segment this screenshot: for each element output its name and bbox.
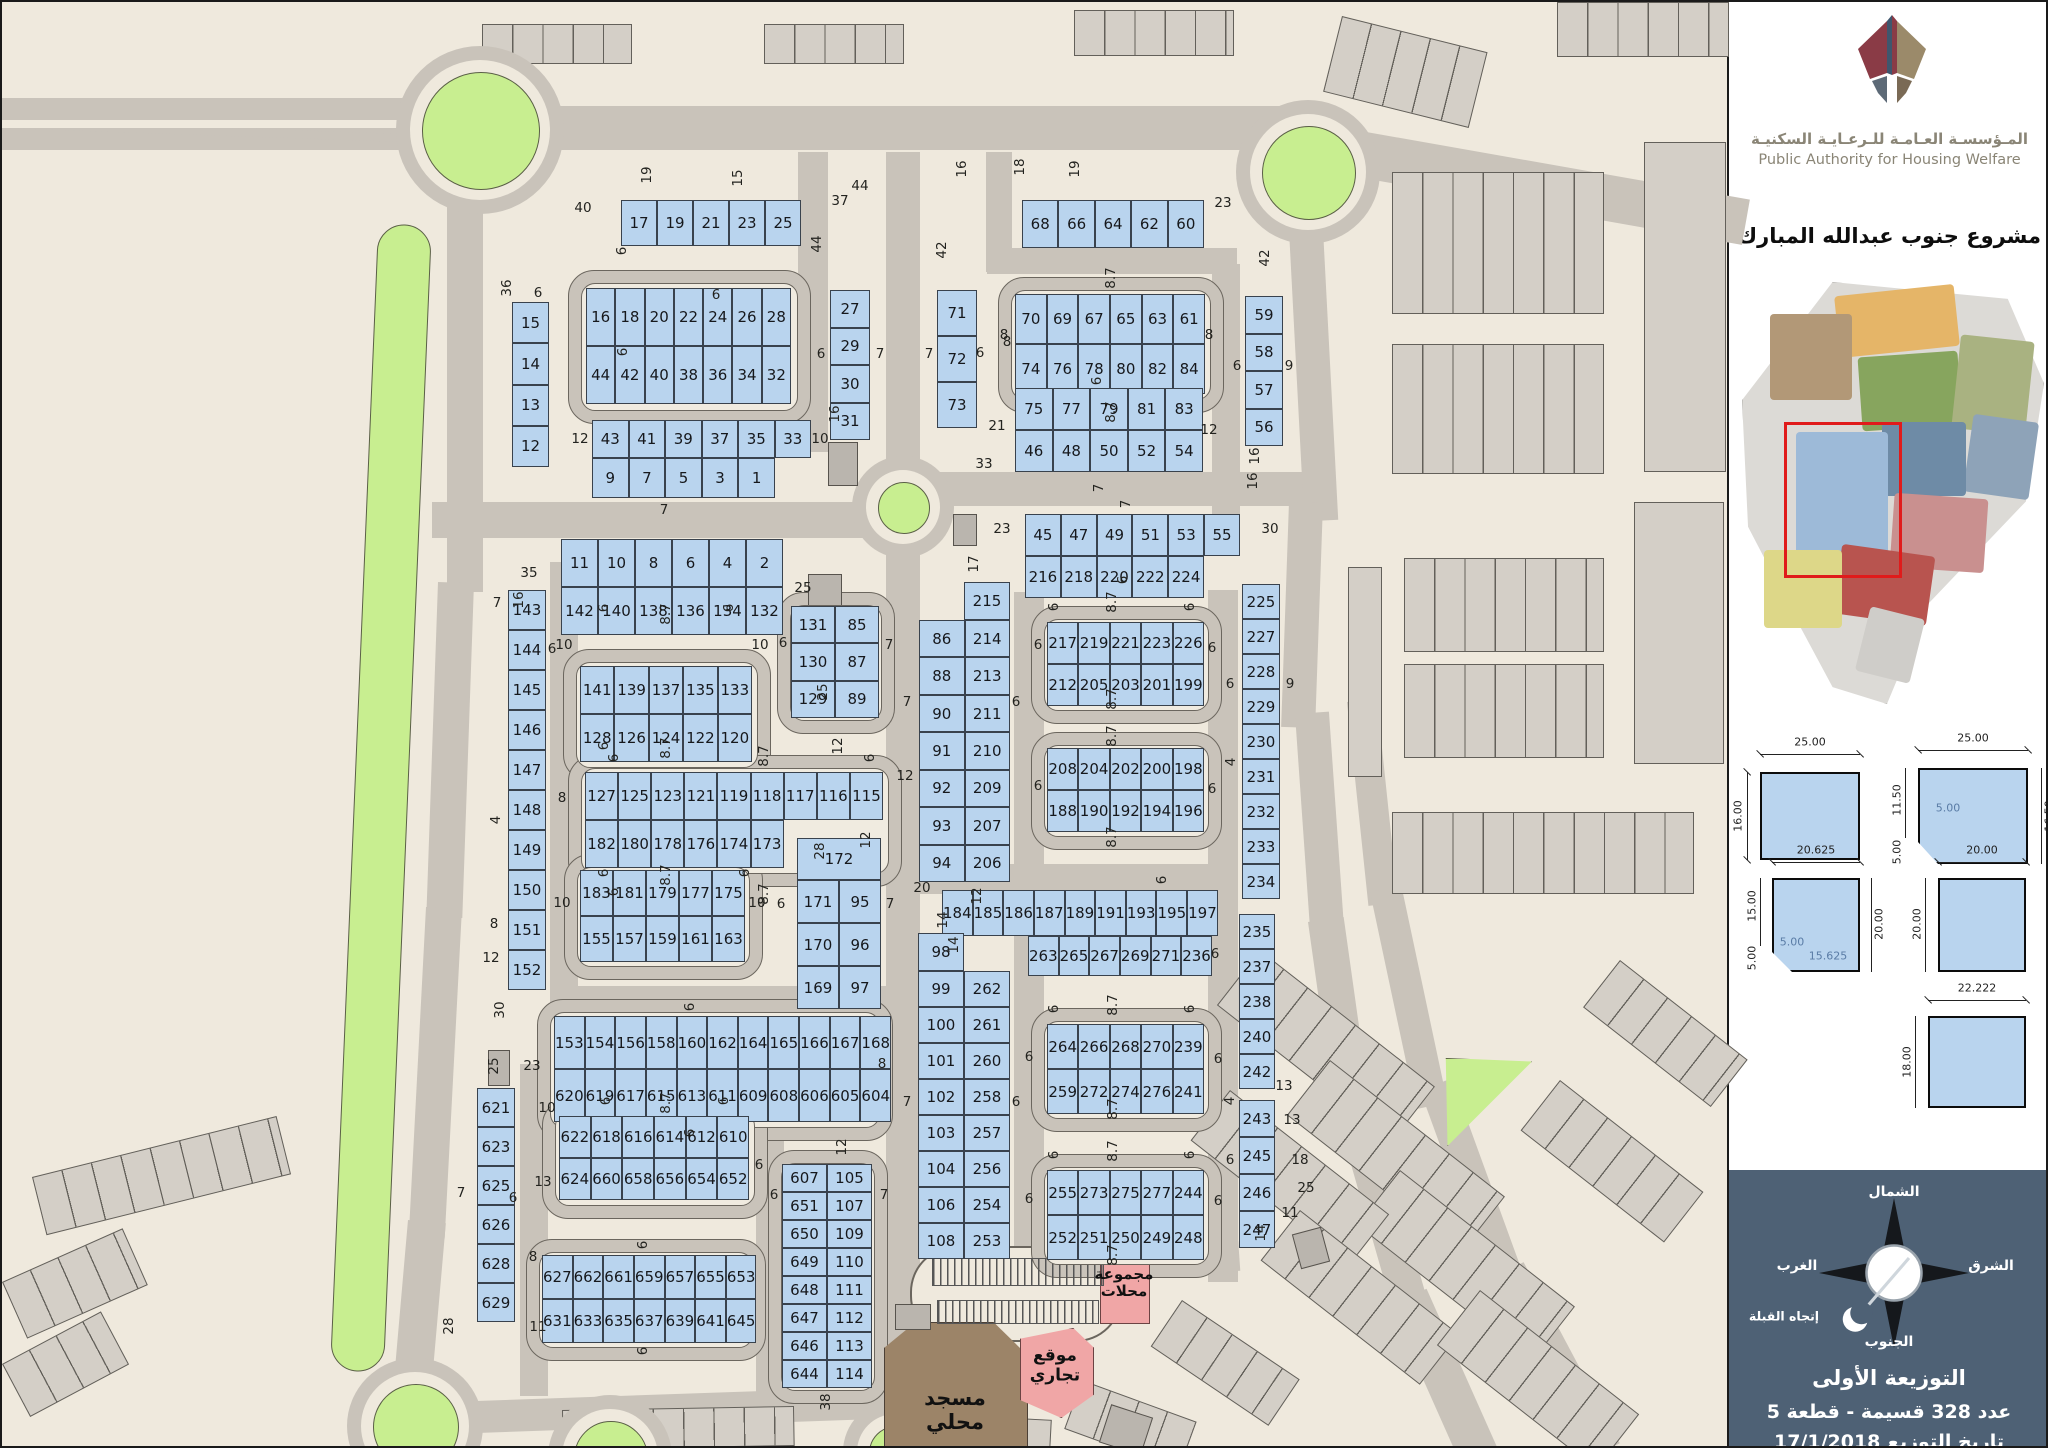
plot-67: 67	[1078, 294, 1110, 344]
plot-648: 648	[782, 1276, 827, 1304]
plot-3: 3	[702, 458, 739, 498]
plot-604: 604	[860, 1069, 891, 1122]
road-dim-label: 7	[886, 896, 895, 912]
road-dim-label: 6	[721, 604, 737, 613]
road-dim-label: 30	[492, 1001, 508, 1018]
plot-253: 253	[964, 1223, 1010, 1259]
plot-266: 266	[1078, 1024, 1109, 1069]
plot-139: 139	[614, 666, 648, 714]
road-segment	[1281, 502, 1323, 728]
plot-25: 25	[765, 200, 801, 246]
road-dim-label: 4	[1222, 1097, 1238, 1106]
plot-198: 198	[1173, 748, 1204, 790]
plot-256: 256	[964, 1151, 1010, 1187]
plot-116: 116	[817, 772, 850, 820]
plot-84: 84	[1173, 344, 1205, 394]
plot-652: 652	[717, 1158, 749, 1200]
plot-91: 91	[919, 732, 965, 769]
plot-229: 229	[1242, 689, 1280, 724]
road-dim-label: 11	[1281, 1205, 1298, 1221]
plot-105: 105	[827, 1164, 872, 1192]
plot-85: 85	[835, 606, 879, 643]
plot-type-4	[1938, 878, 2026, 972]
plot-620: 620	[554, 1069, 585, 1122]
road-dim-label: 7	[925, 346, 934, 362]
plot-219: 219	[1078, 622, 1109, 664]
road-dim-label: 12	[830, 737, 846, 754]
plot-121: 121	[684, 772, 717, 820]
road-dim-label: 7	[457, 1185, 466, 1201]
road-dim-label: 18	[1291, 1152, 1308, 1168]
plot-41: 41	[629, 420, 666, 458]
plot-215: 215	[964, 582, 1010, 620]
road-dim-label: 8.7	[1104, 591, 1120, 612]
road-dim-label: 16	[954, 160, 970, 177]
road-median	[2, 120, 440, 128]
project-title: مشروع جنوب عبدالله المبارك	[1729, 224, 2048, 248]
road-dim-label: 10	[538, 1100, 555, 1116]
plot-262: 262	[964, 971, 1010, 1007]
plot-607: 607	[782, 1164, 827, 1192]
plot-100: 100	[918, 1007, 964, 1043]
unassigned-plot-row	[1392, 812, 1694, 894]
road-dim-label: 6	[534, 285, 543, 301]
plot-block: 454749515355	[1025, 514, 1240, 556]
road-dim-label: 25	[815, 683, 831, 700]
plot-653: 653	[726, 1255, 757, 1299]
plot-58: 58	[1245, 334, 1283, 372]
plot-655: 655	[695, 1255, 726, 1299]
plot-637: 637	[634, 1299, 665, 1343]
road-dim-label: 25	[486, 1057, 502, 1074]
plot-59: 59	[1245, 296, 1283, 334]
plot-645: 645	[726, 1299, 757, 1343]
plot-block: 235237238240242	[1239, 914, 1275, 1089]
road-dim-label: 15	[730, 169, 746, 186]
overview-highlight-box	[1784, 422, 1902, 578]
plot-114: 114	[827, 1360, 872, 1388]
commercial-label: موقعتجاري	[1030, 1346, 1080, 1385]
road-dim-label: 18	[1012, 158, 1028, 175]
unassigned-plot-row	[1404, 664, 1604, 758]
road-dim-label: 6	[1046, 1151, 1062, 1160]
road-dim-label: 6	[1182, 1151, 1198, 1160]
plot-264: 264	[1047, 1024, 1078, 1069]
road-dim-label: 8	[1205, 327, 1214, 343]
plot-21: 21	[693, 200, 729, 246]
road-dim-label: 6	[755, 1157, 764, 1173]
road-dim-label: 12	[482, 950, 499, 966]
plot-224: 224	[1168, 556, 1204, 598]
plot-152: 152	[508, 950, 546, 990]
dim-label: 25.00	[1794, 736, 1826, 749]
plot-123: 123	[651, 772, 684, 820]
plot-151: 151	[508, 910, 546, 950]
plot-649: 649	[782, 1248, 827, 1276]
plot-102: 102	[918, 1079, 964, 1115]
unassigned-plot-row	[1583, 960, 1748, 1107]
plot-243: 243	[1239, 1100, 1275, 1137]
plot-187: 187	[1034, 890, 1065, 936]
plot-621: 621	[477, 1088, 515, 1127]
plot-15: 15	[512, 302, 549, 343]
road-dim-label: 8.7	[658, 603, 674, 624]
plot-222: 222	[1132, 556, 1168, 598]
plot-158: 158	[646, 1016, 677, 1069]
plot-63: 63	[1142, 294, 1174, 344]
plot-28: 28	[762, 288, 791, 346]
unassigned-plot-row	[1644, 142, 1726, 472]
plot-153: 153	[554, 1016, 585, 1069]
plot-32: 32	[762, 346, 791, 404]
road-dim-label: 10	[555, 637, 572, 653]
plot-629: 629	[477, 1283, 515, 1322]
plot-136: 136	[672, 587, 709, 635]
plot-277: 277	[1141, 1170, 1172, 1215]
road-dim-label: 13	[1283, 1112, 1300, 1128]
road-dim-label: 23	[993, 521, 1010, 537]
plot-159: 159	[646, 916, 679, 962]
plot-231: 231	[1242, 759, 1280, 794]
road-dim-label: 8.7	[1103, 401, 1119, 422]
plot-217: 217	[1047, 622, 1078, 664]
plot-51: 51	[1132, 514, 1168, 556]
plot-block: 263265267269271236	[1028, 936, 1208, 976]
plot-193: 193	[1126, 890, 1157, 936]
plot-96: 96	[839, 923, 881, 966]
plot-639: 639	[665, 1299, 696, 1343]
road-dim-label: 8.7	[1104, 688, 1120, 709]
road-dim-label: 8	[490, 916, 499, 932]
road-dim-label: 8.7	[658, 1092, 674, 1113]
road-dim-label: 6	[1226, 676, 1235, 692]
plot-609: 609	[738, 1069, 769, 1122]
road-dim-label: 6	[1211, 946, 1220, 962]
plot-93: 93	[919, 807, 965, 844]
plot-258: 258	[964, 1079, 1010, 1115]
plot-617: 617	[615, 1069, 646, 1122]
plot-155: 155	[580, 916, 613, 962]
plot-block: 215	[964, 582, 1010, 620]
road-dim-label: 6	[1233, 358, 1242, 374]
plot-240: 240	[1239, 1019, 1275, 1054]
plot-195: 195	[1156, 890, 1187, 936]
road-dim-label: 6	[1034, 778, 1043, 794]
road-dim-label: 16	[1245, 472, 1261, 489]
plot-113: 113	[827, 1332, 872, 1360]
plot-199: 199	[1173, 664, 1204, 706]
plot-631: 631	[542, 1299, 573, 1343]
plot-8: 8	[635, 539, 672, 587]
plot-62: 62	[1131, 200, 1167, 248]
plot-64: 64	[1095, 200, 1131, 248]
plot-block: 97531	[592, 458, 775, 498]
plot-20: 20	[645, 288, 674, 346]
plot-83: 83	[1165, 388, 1203, 430]
plot-168: 168	[860, 1016, 891, 1069]
road-dim-label: 6	[1226, 1152, 1235, 1168]
plot-646: 646	[782, 1332, 827, 1360]
road-dim-label: 7	[1118, 500, 1134, 509]
plot-271: 271	[1151, 936, 1182, 976]
road-dim-label: 44	[851, 178, 868, 194]
plot-624: 624	[559, 1158, 591, 1200]
road-dim-label: 8	[558, 790, 567, 806]
road-dim-label: 6	[1115, 576, 1131, 585]
utility-box	[895, 1304, 931, 1330]
plot-block: 217219221223226212205203201199	[1047, 622, 1204, 706]
road-dim-label: 12	[896, 768, 913, 784]
plot-block: 143144145146147148149150151152	[508, 590, 546, 990]
unassigned-plot-row	[2, 1311, 129, 1417]
plot-618: 618	[591, 1116, 623, 1158]
road-dim-label: 12	[969, 887, 985, 904]
plot-267: 267	[1089, 936, 1120, 976]
plot-7: 7	[629, 458, 666, 498]
plot-654: 654	[686, 1158, 718, 1200]
plot-block: 59585756	[1245, 296, 1283, 446]
unassigned-plot-row	[1557, 2, 1729, 57]
plot-226: 226	[1173, 622, 1204, 664]
plot-127: 127	[585, 772, 618, 820]
road-dim-label: 14	[935, 911, 951, 928]
road-dim-label: 16	[827, 405, 843, 422]
plot-245: 245	[1239, 1137, 1275, 1174]
plot-1: 1	[738, 458, 775, 498]
plot-90: 90	[919, 695, 965, 732]
plot-626: 626	[477, 1205, 515, 1244]
plot-132: 132	[746, 587, 783, 635]
road-dim-label: 42	[1257, 249, 1273, 266]
plot-block: 131851308712989	[791, 606, 879, 718]
plot-11: 11	[561, 539, 598, 587]
plot-103: 103	[918, 1115, 964, 1151]
road-dim-label: 9	[1285, 358, 1294, 374]
plot-188: 188	[1047, 790, 1078, 832]
plot-71: 71	[937, 290, 977, 336]
road-dim-label: 6	[1025, 1191, 1034, 1207]
plot-146: 146	[508, 710, 546, 750]
road-dim-label: 19	[639, 166, 655, 183]
road-dim-label: 12	[834, 1138, 850, 1155]
plot-269: 269	[1120, 936, 1151, 976]
road-dim-label: 6	[614, 247, 630, 256]
road-segment	[426, 582, 474, 918]
road-dim-label: 11	[529, 1319, 546, 1335]
plot-46: 46	[1015, 430, 1053, 472]
road-dim-label: 12	[1200, 422, 1217, 438]
road-segment	[409, 907, 462, 1238]
plot-block: 171951709616997	[797, 880, 881, 1009]
road-dim-label: 6	[635, 1241, 651, 1250]
plot-75: 75	[1015, 388, 1053, 430]
plot-259: 259	[1047, 1069, 1078, 1114]
plot-block: 15141312	[512, 302, 549, 467]
plot-53: 53	[1168, 514, 1204, 556]
road-segment	[432, 106, 1332, 150]
plot-657: 657	[665, 1255, 696, 1299]
road-dim-label: 8.7	[756, 745, 772, 766]
road-dim-label: 6	[779, 635, 788, 651]
road-dim-label: 13	[1275, 1078, 1292, 1094]
plot-610: 610	[717, 1116, 749, 1158]
road-dim-label: 9	[1286, 676, 1295, 692]
road-dim-label: 37	[831, 193, 848, 209]
plot-block: 6866646260	[1022, 200, 1204, 248]
plot-265: 265	[1059, 936, 1090, 976]
road-dim-label: 8.7	[1105, 1244, 1121, 1265]
unassigned-plot-row	[1634, 502, 1724, 764]
mosque-label: مسجدمحلي	[924, 1386, 986, 1434]
compass-qibla-label: إتجاه القبلة	[1749, 1309, 1819, 1324]
plot-49: 49	[1097, 514, 1133, 556]
unassigned-plot-row	[32, 1116, 291, 1235]
plot-171: 171	[797, 880, 839, 923]
plot-117: 117	[784, 772, 817, 820]
road-segment	[1295, 712, 1344, 934]
plot-17: 17	[621, 200, 657, 246]
plot-block: 86214882139021191210922099320794206	[919, 620, 1010, 882]
plot-211: 211	[965, 695, 1011, 732]
road-dim-label: 6	[737, 869, 753, 878]
plot-40: 40	[645, 346, 674, 404]
road-dim-label: 33	[975, 456, 992, 472]
plot-108: 108	[918, 1223, 964, 1259]
green-triangle-east	[1444, 1058, 1532, 1146]
plot-237: 237	[1239, 949, 1275, 984]
road-dim-label: 6	[1034, 637, 1043, 653]
road-dim-label: 14	[946, 936, 962, 953]
roundabout-green-center	[1262, 126, 1356, 220]
plot-54: 54	[1165, 430, 1203, 472]
plot-661: 661	[603, 1255, 634, 1299]
road-dim-label: 8.7	[1105, 994, 1121, 1015]
plot-125: 125	[618, 772, 651, 820]
road-dim-label: 6	[716, 1097, 732, 1106]
distribution-title: التوزيعة الأولى	[1812, 1366, 1966, 1390]
plot-33: 33	[775, 420, 812, 458]
plot-block: 434139373533	[592, 420, 811, 458]
road-dim-label: 35	[520, 565, 537, 581]
plot-73: 73	[937, 382, 977, 428]
plot-230: 230	[1242, 724, 1280, 759]
road-dim-label: 6	[1208, 781, 1217, 797]
plot-74: 74	[1015, 344, 1047, 394]
plot-605: 605	[830, 1069, 861, 1122]
plot-144: 144	[508, 630, 546, 670]
road-dim-label: 6	[606, 754, 622, 763]
road-segment	[986, 152, 1012, 272]
plot-block: 706967656361747678808284	[1015, 294, 1205, 394]
road-dim-label: 28	[441, 1317, 457, 1334]
plot-block: 225227228229230231232233234	[1242, 584, 1280, 899]
plot-block: 622618616614612610624660658656654652	[559, 1116, 749, 1200]
plot-30: 30	[830, 365, 870, 403]
road-dim-label: 14	[1253, 1224, 1269, 1241]
road-dim-label: 36	[499, 279, 515, 296]
plot-61: 61	[1173, 294, 1205, 344]
road-dim-label: 28	[812, 842, 828, 859]
plot-147: 147	[508, 750, 546, 790]
plot-210: 210	[965, 732, 1011, 769]
plot-107: 107	[827, 1192, 872, 1220]
plot-112: 112	[827, 1304, 872, 1332]
road-dim-label: 8.7	[1105, 1098, 1121, 1119]
road-dim-label: 20	[913, 880, 930, 896]
plot-57: 57	[1245, 371, 1283, 409]
road-dim-label: 8.7	[1103, 267, 1119, 288]
plot-164: 164	[738, 1016, 769, 1069]
plot-88: 88	[919, 657, 965, 694]
road-dim-label: 8.7	[1105, 1140, 1121, 1161]
plot-252: 252	[1047, 1215, 1078, 1260]
compass-south-label: الجنوب	[1865, 1334, 1914, 1350]
plot-613: 613	[677, 1069, 708, 1122]
plot-177: 177	[679, 870, 712, 916]
plot-213: 213	[965, 657, 1011, 694]
plot-204: 204	[1078, 748, 1109, 790]
road-dim-label: 16	[511, 591, 527, 608]
plot-55: 55	[1204, 514, 1240, 556]
plot-212: 212	[1047, 664, 1078, 706]
plot-block: 6276626616596576556536316336356376396416…	[542, 1255, 748, 1343]
plot-6: 6	[672, 539, 709, 587]
road-dim-label: 6	[1012, 1094, 1021, 1110]
road-dim-label: 16	[1247, 447, 1263, 464]
road-dim-label: 4	[1223, 758, 1239, 767]
road-dim-label: 6	[770, 1187, 779, 1203]
plot-191: 191	[1095, 890, 1126, 936]
plot-block: 1618202224262844424038363432	[586, 288, 791, 404]
plot-633: 633	[573, 1299, 604, 1343]
road-dim-label: 6	[682, 1129, 698, 1138]
plot-180: 180	[618, 820, 651, 868]
plot-118: 118	[751, 772, 784, 820]
plot-130: 130	[791, 643, 835, 680]
plot-45: 45	[1025, 514, 1061, 556]
road-dim-label: 6	[635, 1347, 651, 1356]
unassigned-plot-row	[1521, 1080, 1704, 1242]
plot-69: 69	[1047, 294, 1079, 344]
plot-157: 157	[613, 916, 646, 962]
plot-223: 223	[1141, 622, 1172, 664]
road-dim-label: 6	[596, 604, 612, 613]
plot-232: 232	[1242, 794, 1280, 829]
plot-194: 194	[1141, 790, 1172, 832]
plot-68: 68	[1022, 200, 1058, 248]
plot-662: 662	[573, 1255, 604, 1299]
plot-619: 619	[585, 1069, 616, 1122]
plot-623: 623	[477, 1127, 515, 1166]
road-dim-label: 23	[523, 1058, 540, 1074]
plot-137: 137	[649, 666, 683, 714]
plot-242: 242	[1239, 1054, 1275, 1089]
plot-66: 66	[1058, 200, 1094, 248]
plot-207: 207	[965, 807, 1011, 844]
road-dim-label: 12	[858, 831, 874, 848]
overview-map	[1742, 282, 2042, 702]
roundabout-green-center	[422, 72, 540, 190]
road-dim-label: 8	[1000, 327, 1009, 343]
plot-36: 36	[703, 346, 732, 404]
plot-39: 39	[665, 420, 702, 458]
plot-148: 148	[508, 790, 546, 830]
road-dim-label: 6	[1182, 1005, 1198, 1014]
plot-94: 94	[919, 845, 965, 882]
plot-133: 133	[718, 666, 752, 714]
compass-west-label: الغرب	[1777, 1258, 1818, 1274]
plot-160: 160	[677, 1016, 708, 1069]
